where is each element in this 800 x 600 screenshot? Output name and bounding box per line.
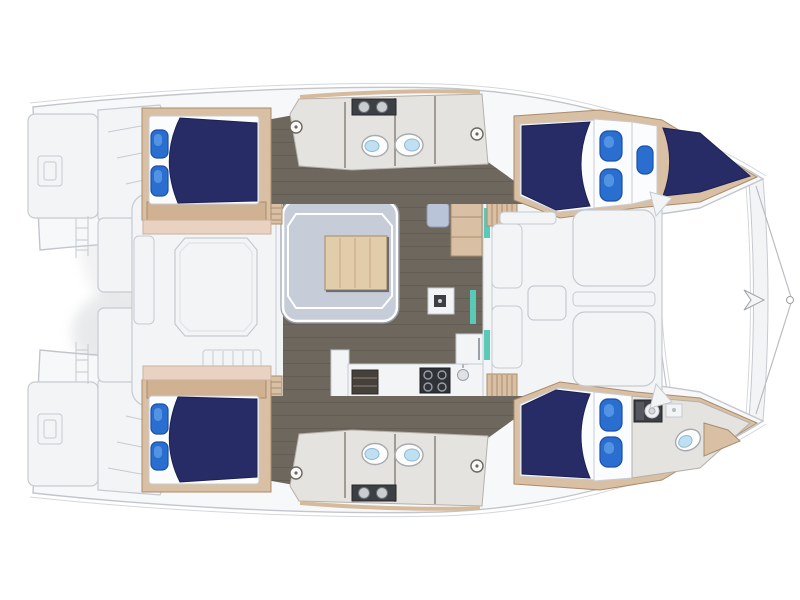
double-berth	[169, 118, 257, 203]
double-berth	[169, 397, 257, 482]
forward-bench-left-2	[492, 306, 522, 368]
port-aft-cabin	[142, 108, 271, 234]
double-berth	[522, 122, 590, 210]
trampoline-frame-line	[660, 186, 750, 414]
shelf-unit	[352, 370, 378, 394]
cockpit-table	[175, 238, 257, 336]
forward-side-table	[528, 286, 566, 320]
starboard-aft-cabin	[142, 366, 271, 492]
double-berth	[522, 390, 590, 478]
washbasin	[377, 102, 388, 113]
forward-bench-left	[492, 224, 522, 288]
bow-trampoline	[657, 179, 794, 421]
bench-seat-left	[134, 236, 154, 324]
sideboard	[451, 198, 482, 256]
starboard-forward-toilet	[395, 444, 423, 466]
side-deck-strip	[143, 366, 271, 380]
counter-stub	[331, 350, 349, 398]
forward-seat-strip	[573, 292, 655, 306]
deck-plan-figure	[0, 0, 800, 600]
catamaran-floor-plan-page	[0, 0, 800, 600]
nav-seat	[427, 203, 449, 227]
washbasin	[359, 102, 370, 113]
galley-sink	[458, 370, 469, 381]
saloon-table	[325, 236, 387, 290]
washbasin	[359, 488, 370, 499]
port-forward-toilet	[395, 134, 423, 156]
forward-door-glass-2	[484, 330, 490, 360]
bowsprit-tip	[787, 297, 794, 304]
forward-bench-small	[500, 212, 556, 224]
forward-sun-pad-2	[573, 312, 655, 386]
forward-sun-pad	[573, 210, 655, 286]
blue-pillow	[637, 146, 653, 174]
galley-window	[470, 290, 476, 324]
port-aft-toilet	[362, 136, 388, 157]
trampoline-frame	[660, 186, 750, 414]
side-deck-strip	[143, 220, 271, 234]
starboard-aft-toilet	[362, 444, 388, 465]
washbasin	[377, 488, 388, 499]
